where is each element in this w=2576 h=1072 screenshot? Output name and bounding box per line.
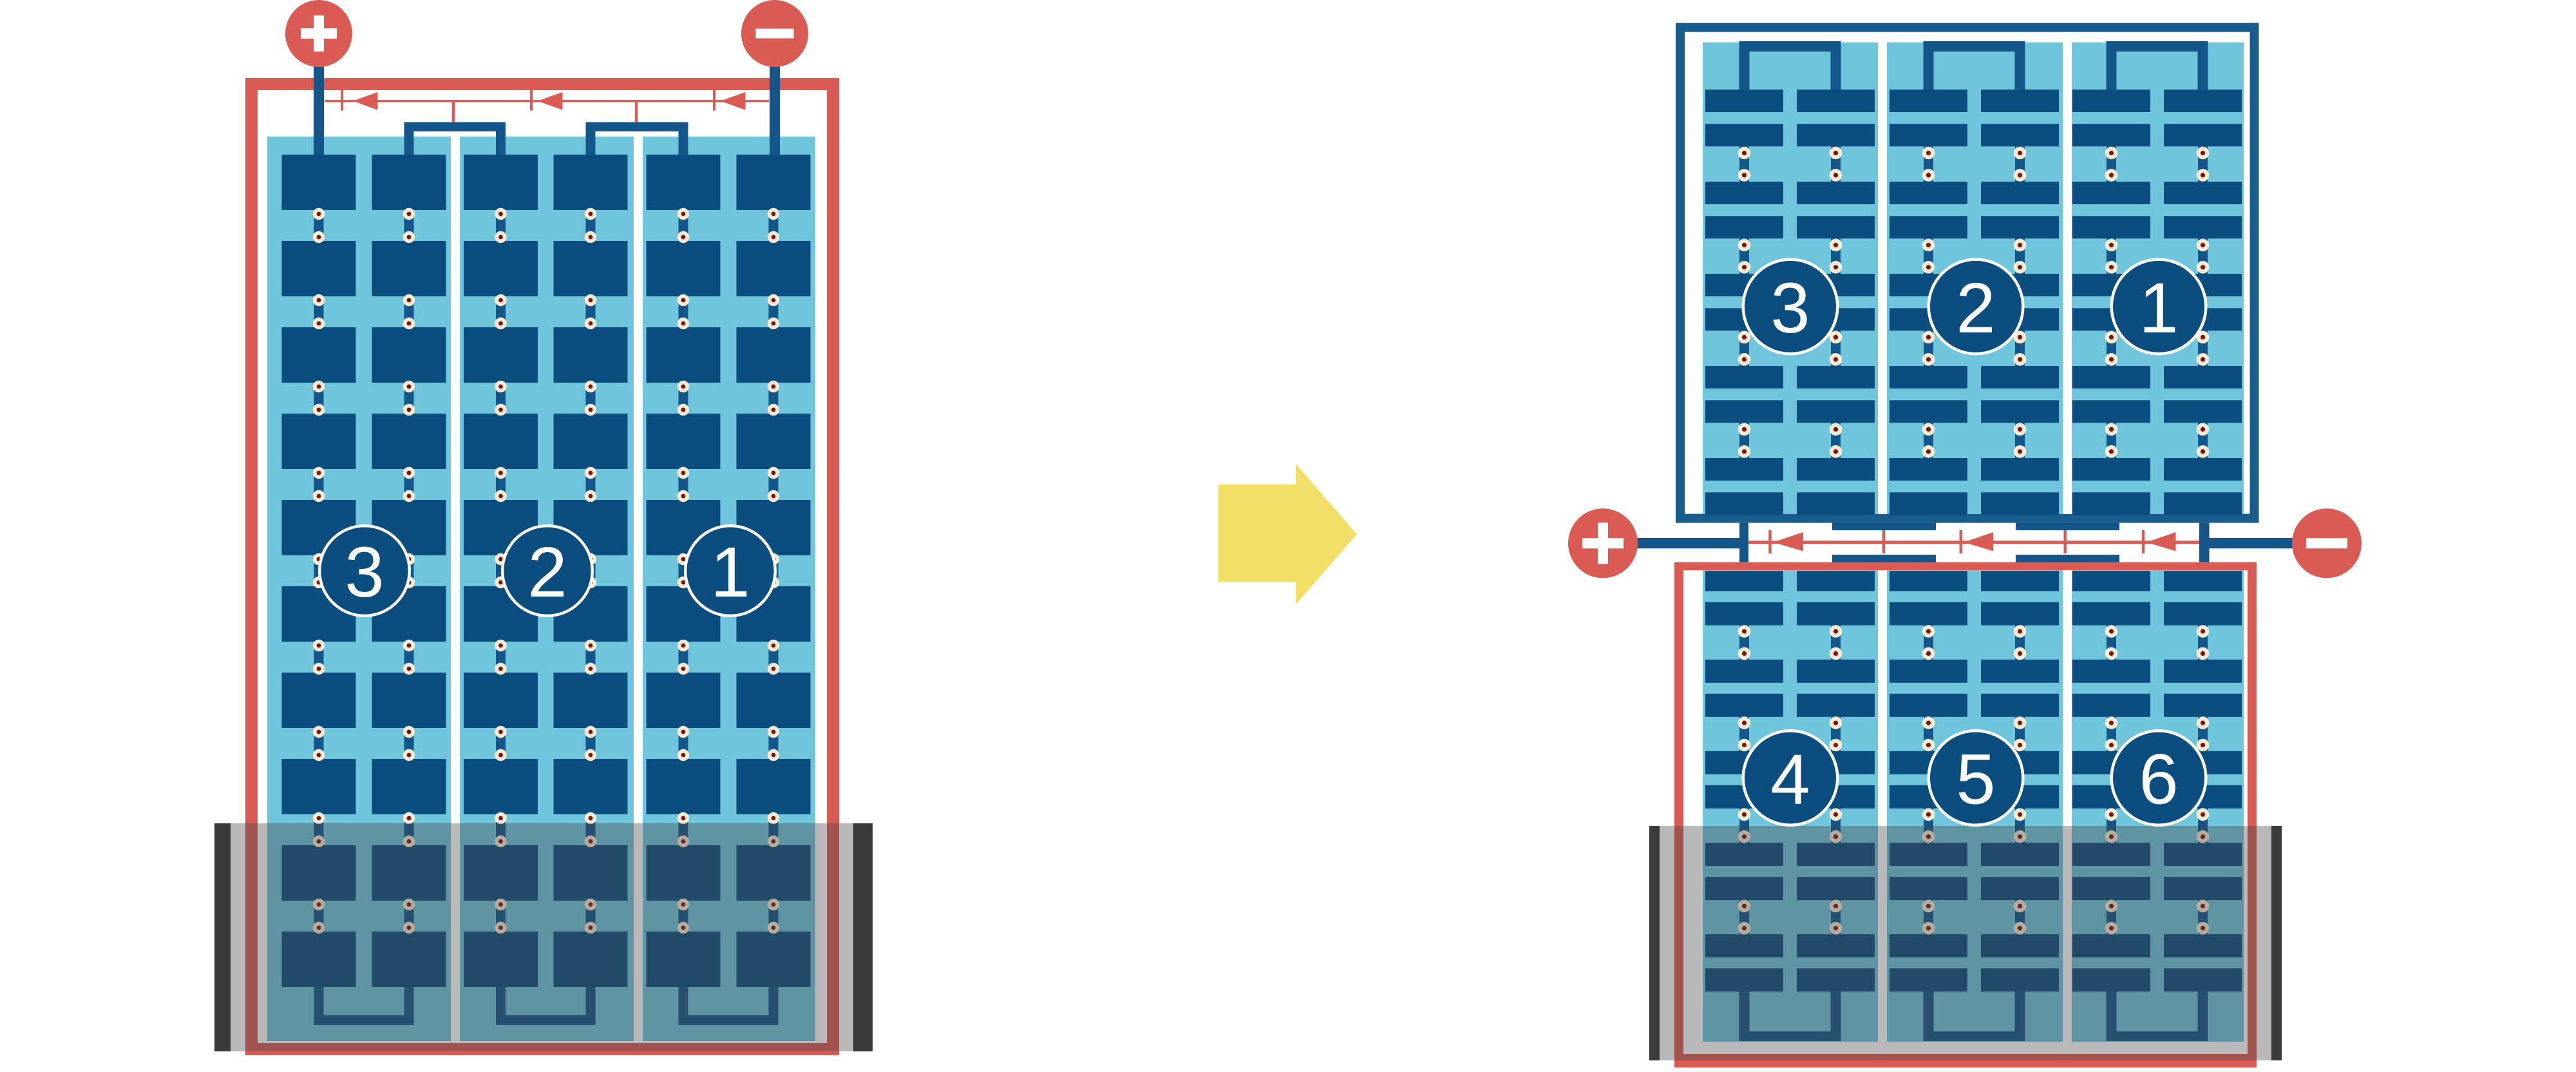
svg-text:3: 3: [1770, 269, 1810, 348]
svg-text:5: 5: [1956, 740, 1995, 819]
svg-text:1: 1: [710, 533, 750, 612]
svg-text:1: 1: [2139, 269, 2178, 348]
svg-text:6: 6: [2139, 740, 2178, 819]
svg-text:2: 2: [1956, 269, 1995, 348]
svg-text:3: 3: [345, 533, 384, 612]
svg-text:2: 2: [527, 533, 567, 612]
svg-text:4: 4: [1770, 740, 1810, 819]
